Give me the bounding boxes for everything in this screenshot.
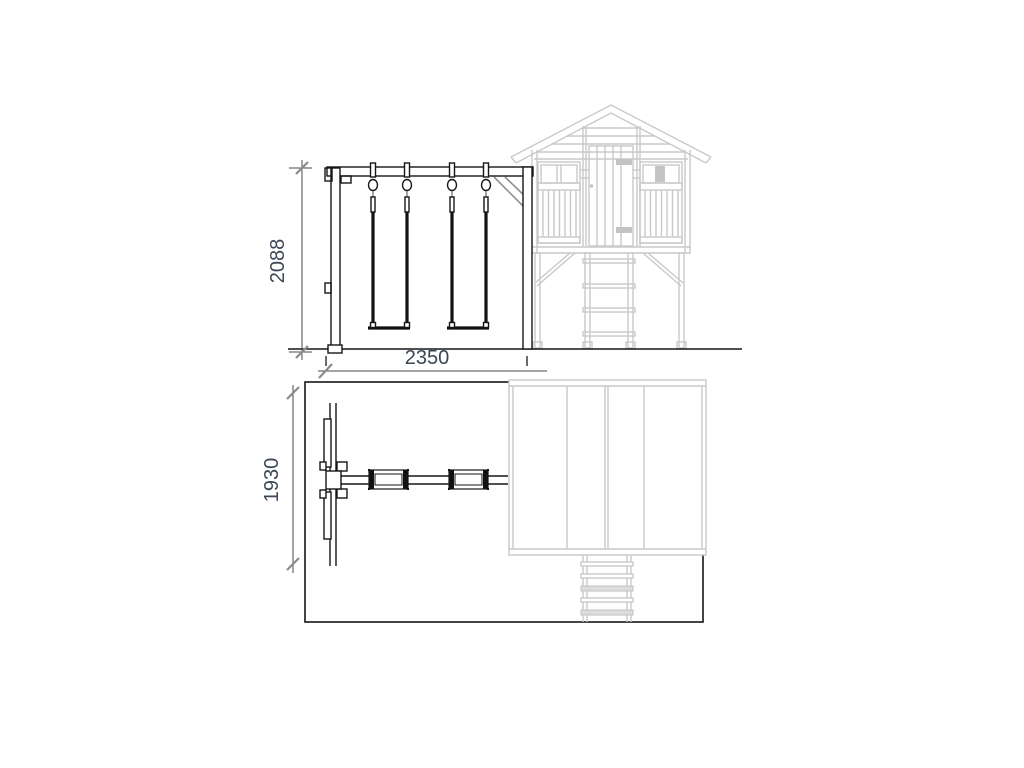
swing-hanger bbox=[482, 163, 491, 322]
playhouse-roof bbox=[511, 105, 711, 163]
technical-drawing-svg: 2088 2350 bbox=[0, 0, 1024, 768]
dimension-label-height: 2088 bbox=[267, 239, 289, 284]
swing-seat-plan-1 bbox=[368, 469, 409, 490]
seat-ring bbox=[450, 323, 455, 328]
beam-joint bbox=[341, 176, 351, 183]
door-handle bbox=[590, 184, 594, 188]
ladder-elevation bbox=[583, 259, 635, 336]
playhouse-window-left bbox=[538, 162, 580, 243]
elevation-view: 2088 2350 bbox=[267, 105, 742, 378]
top-beam bbox=[327, 167, 533, 176]
ladder-plan bbox=[581, 555, 633, 622]
swing-left-post bbox=[325, 168, 342, 353]
swing-hanger bbox=[369, 163, 378, 322]
playhouse-stilts bbox=[533, 253, 686, 349]
drawing-sheet: 2088 2350 bbox=[0, 0, 1024, 768]
swing-hanger bbox=[403, 163, 412, 322]
swing-frame bbox=[325, 163, 533, 353]
swing-seat-plan-2 bbox=[448, 469, 489, 490]
playhouse-floor bbox=[529, 247, 691, 253]
playhouse-elevation bbox=[511, 105, 711, 349]
dimension-width-2350: 2350 bbox=[318, 347, 547, 378]
seat-ring bbox=[484, 323, 489, 328]
stilt-braces bbox=[535, 253, 683, 286]
plan-view: 1930 bbox=[261, 380, 706, 622]
door-hinge-bottom bbox=[616, 227, 632, 233]
dimension-height-2088: 2088 bbox=[267, 160, 312, 360]
house-footprint-plan bbox=[509, 380, 706, 555]
swing-right-post bbox=[523, 167, 532, 349]
swing-hanger bbox=[448, 163, 457, 322]
seat-ring bbox=[405, 323, 410, 328]
dimension-depth-1930: 1930 bbox=[261, 385, 299, 573]
swing-2 bbox=[447, 163, 491, 328]
post-section bbox=[326, 471, 341, 489]
playhouse-window-right bbox=[640, 162, 682, 243]
swing-1 bbox=[368, 163, 412, 328]
seat-ring bbox=[371, 323, 376, 328]
door-hinge-top bbox=[616, 159, 632, 165]
dimension-label-depth: 1930 bbox=[261, 458, 283, 503]
dimension-label-width: 2350 bbox=[405, 347, 450, 369]
